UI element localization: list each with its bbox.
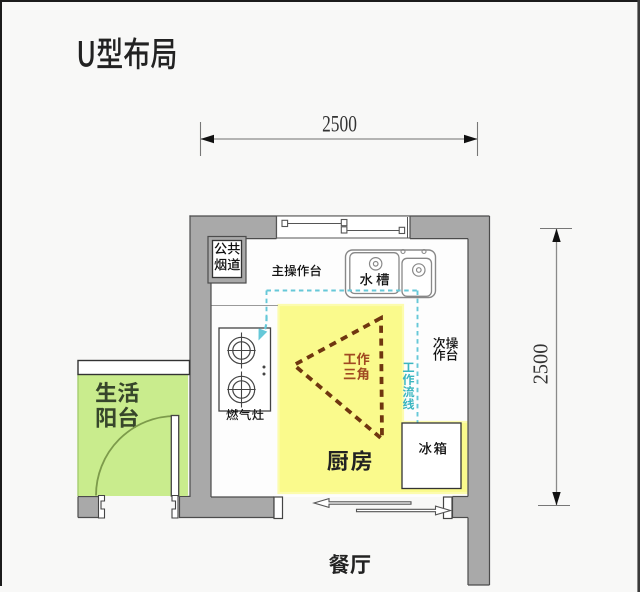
svg-text:2500: 2500	[322, 112, 357, 137]
svg-text:2500: 2500	[528, 344, 553, 385]
